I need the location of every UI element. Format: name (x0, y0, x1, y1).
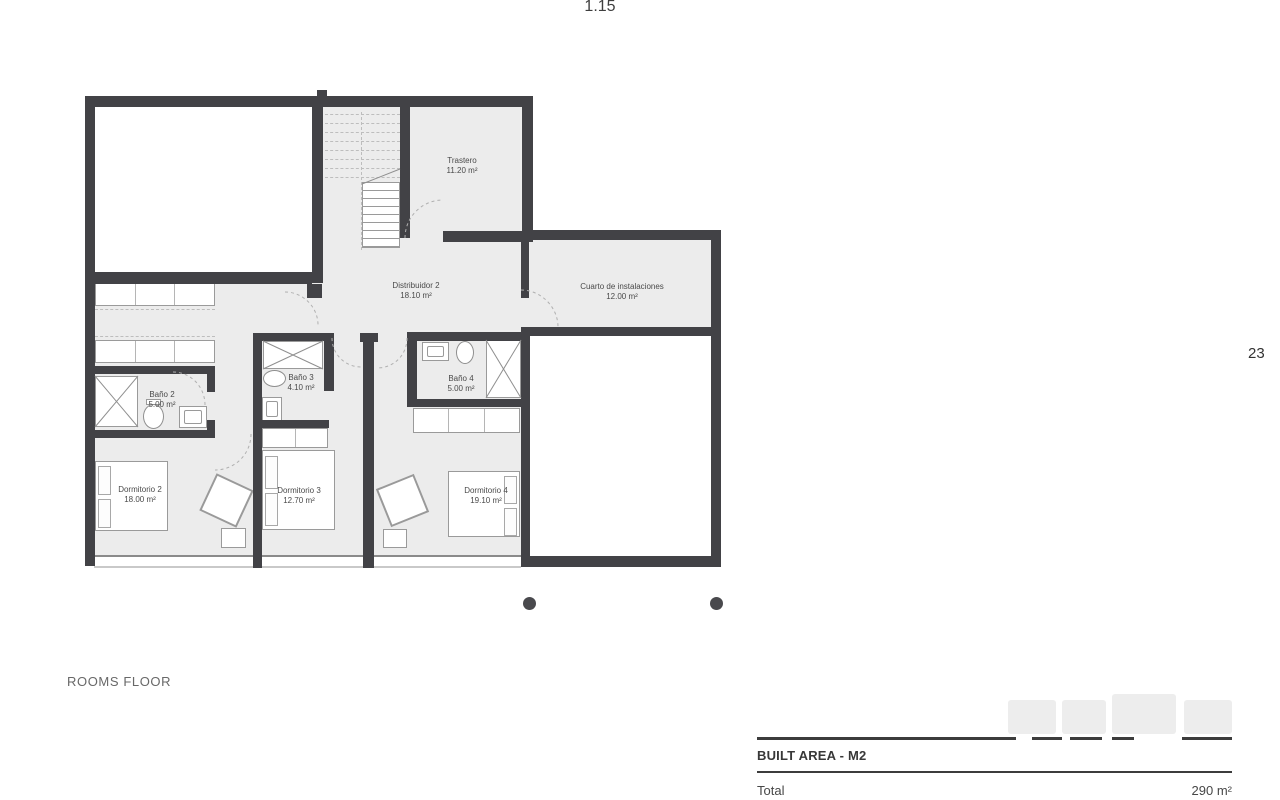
table-top-rule (757, 737, 1016, 740)
wall (711, 230, 721, 566)
room-label-bano2: Baño 25.00 m² (132, 390, 192, 411)
wall (317, 90, 327, 96)
wall (253, 333, 330, 341)
wall (521, 556, 721, 567)
watermark (1062, 700, 1106, 734)
stairs (362, 182, 400, 248)
wall (521, 327, 711, 336)
wall (410, 399, 522, 407)
wall (400, 107, 410, 238)
pillow (265, 456, 278, 489)
stair-flight-dashed (325, 114, 400, 115)
window-line (94, 555, 521, 557)
void-room-bottom-right (530, 336, 711, 556)
table-top-rule-dash (1070, 737, 1102, 740)
floor-plan: Trastero11.20 m² Distribuidor 218.10 m² … (0, 0, 1280, 800)
room-label-dormitorio4: Dormitorio 419.10 m² (441, 486, 531, 507)
wall (407, 332, 522, 341)
room-label-distribuidor: Distribuidor 218.10 m² (366, 281, 466, 302)
wardrobe-hanger-line (95, 309, 215, 310)
reference-dot (523, 597, 536, 610)
wall (85, 96, 95, 566)
shower (263, 341, 323, 369)
sink-basin (184, 410, 202, 424)
toilet (456, 341, 474, 364)
wall (521, 336, 530, 557)
wall (207, 374, 215, 392)
table-top-rule-dash (1112, 737, 1134, 740)
wall (94, 366, 215, 374)
room-label-dormitorio3: Dormitorio 312.70 m² (254, 486, 344, 507)
watermark (1184, 700, 1232, 734)
floor-title: ROOMS FLOOR (67, 674, 171, 689)
wall (407, 333, 417, 407)
room-label-bano3: Baño 34.10 m² (271, 373, 331, 394)
wardrobe (95, 340, 215, 363)
wardrobe-hanger-line (95, 336, 215, 337)
void-room-top-left (95, 107, 312, 272)
table-mid-rule (757, 771, 1232, 773)
wall (85, 430, 215, 438)
wall (521, 240, 529, 298)
room-label-bano4: Baño 45.00 m² (431, 374, 491, 395)
ottoman (221, 528, 246, 548)
wall (363, 342, 374, 568)
room-label-cuarto-instalaciones: Cuarto de instalaciones12.00 m² (547, 282, 697, 303)
wardrobe (95, 283, 215, 306)
wall (253, 420, 329, 428)
wall (522, 230, 711, 240)
pillow (504, 508, 517, 536)
room-label-dormitorio2: Dormitorio 218.00 m² (95, 485, 185, 506)
reference-dot (710, 597, 723, 610)
wall (307, 284, 322, 298)
table-top-rule-dash (1032, 737, 1062, 740)
wardrobe (413, 408, 520, 433)
sink-basin (427, 346, 444, 357)
watermark (1008, 700, 1056, 734)
wall (85, 272, 312, 284)
wall (522, 96, 533, 242)
window-sill-line (94, 566, 521, 568)
wall (443, 231, 533, 242)
sink-basin (266, 401, 278, 417)
room-label-trastero: Trastero11.20 m² (412, 156, 512, 177)
wall (312, 107, 323, 283)
wall (360, 333, 378, 342)
built-area-row-value: 290 m² (1100, 783, 1232, 798)
wardrobe (262, 428, 328, 448)
built-area-row-label: Total (757, 783, 784, 798)
built-area-title: BUILT AREA - M2 (757, 748, 866, 763)
page-number: 23 (1248, 345, 1278, 362)
watermark (1112, 694, 1176, 734)
sheet-scale-label: 1.15 (540, 0, 660, 16)
table-top-rule-dash (1182, 737, 1232, 740)
window-band (94, 557, 521, 566)
ottoman (383, 529, 407, 548)
wall (85, 96, 533, 107)
shower (486, 340, 521, 398)
